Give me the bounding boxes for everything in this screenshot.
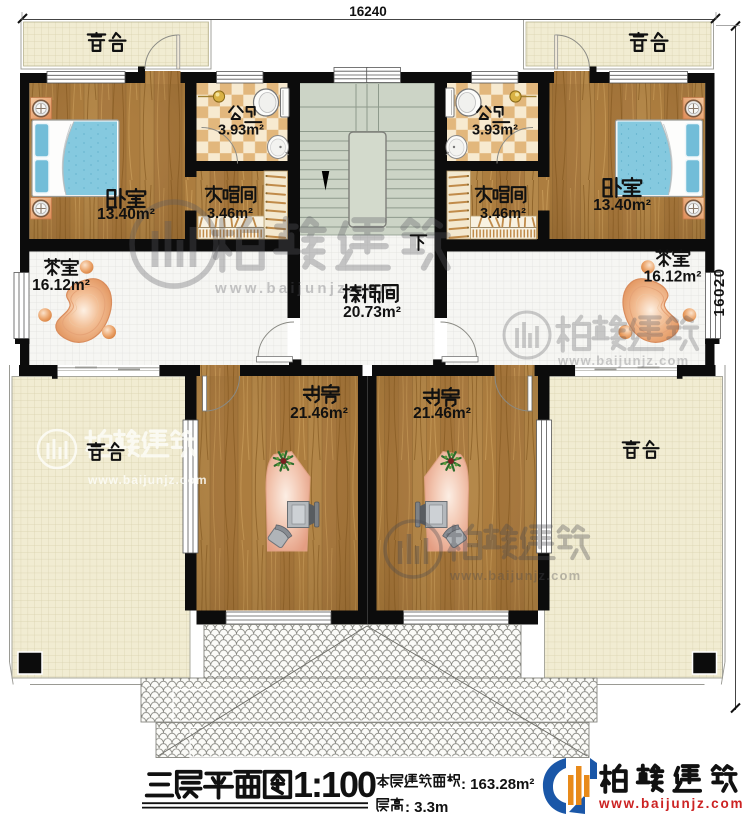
svg-text:13.40m²: 13.40m²: [97, 206, 155, 223]
svg-text:16020: 16020: [711, 267, 728, 316]
svg-text:3.46m²: 3.46m²: [480, 206, 526, 222]
svg-text:3.93m²: 3.93m²: [218, 123, 264, 139]
svg-text:3.46m²: 3.46m²: [207, 206, 253, 222]
svg-text:16240: 16240: [349, 4, 387, 19]
svg-text:16.12m²: 16.12m²: [32, 277, 90, 294]
svg-text:16.12m²: 16.12m²: [644, 269, 702, 286]
svg-text:20.73m²: 20.73m²: [343, 304, 401, 321]
svg-text:: 163.28m²: : 163.28m²: [461, 776, 534, 793]
svg-text:13.40m²: 13.40m²: [593, 197, 651, 214]
svg-text:www.baijunjz.com: www.baijunjz.com: [557, 353, 689, 368]
svg-text:1:100: 1:100: [293, 764, 376, 805]
svg-text:www.baijunjz.com: www.baijunjz.com: [598, 796, 744, 811]
svg-text:www.baijunjz.com: www.baijunjz.com: [87, 473, 208, 487]
svg-text:www.baijunjz.com: www.baijunjz.com: [449, 568, 581, 583]
svg-text:: 3.3m: : 3.3m: [405, 799, 448, 816]
svg-text:3.93m²: 3.93m²: [472, 123, 518, 139]
svg-text:21.46m²: 21.46m²: [413, 405, 471, 422]
svg-text:21.46m²: 21.46m²: [290, 405, 348, 422]
